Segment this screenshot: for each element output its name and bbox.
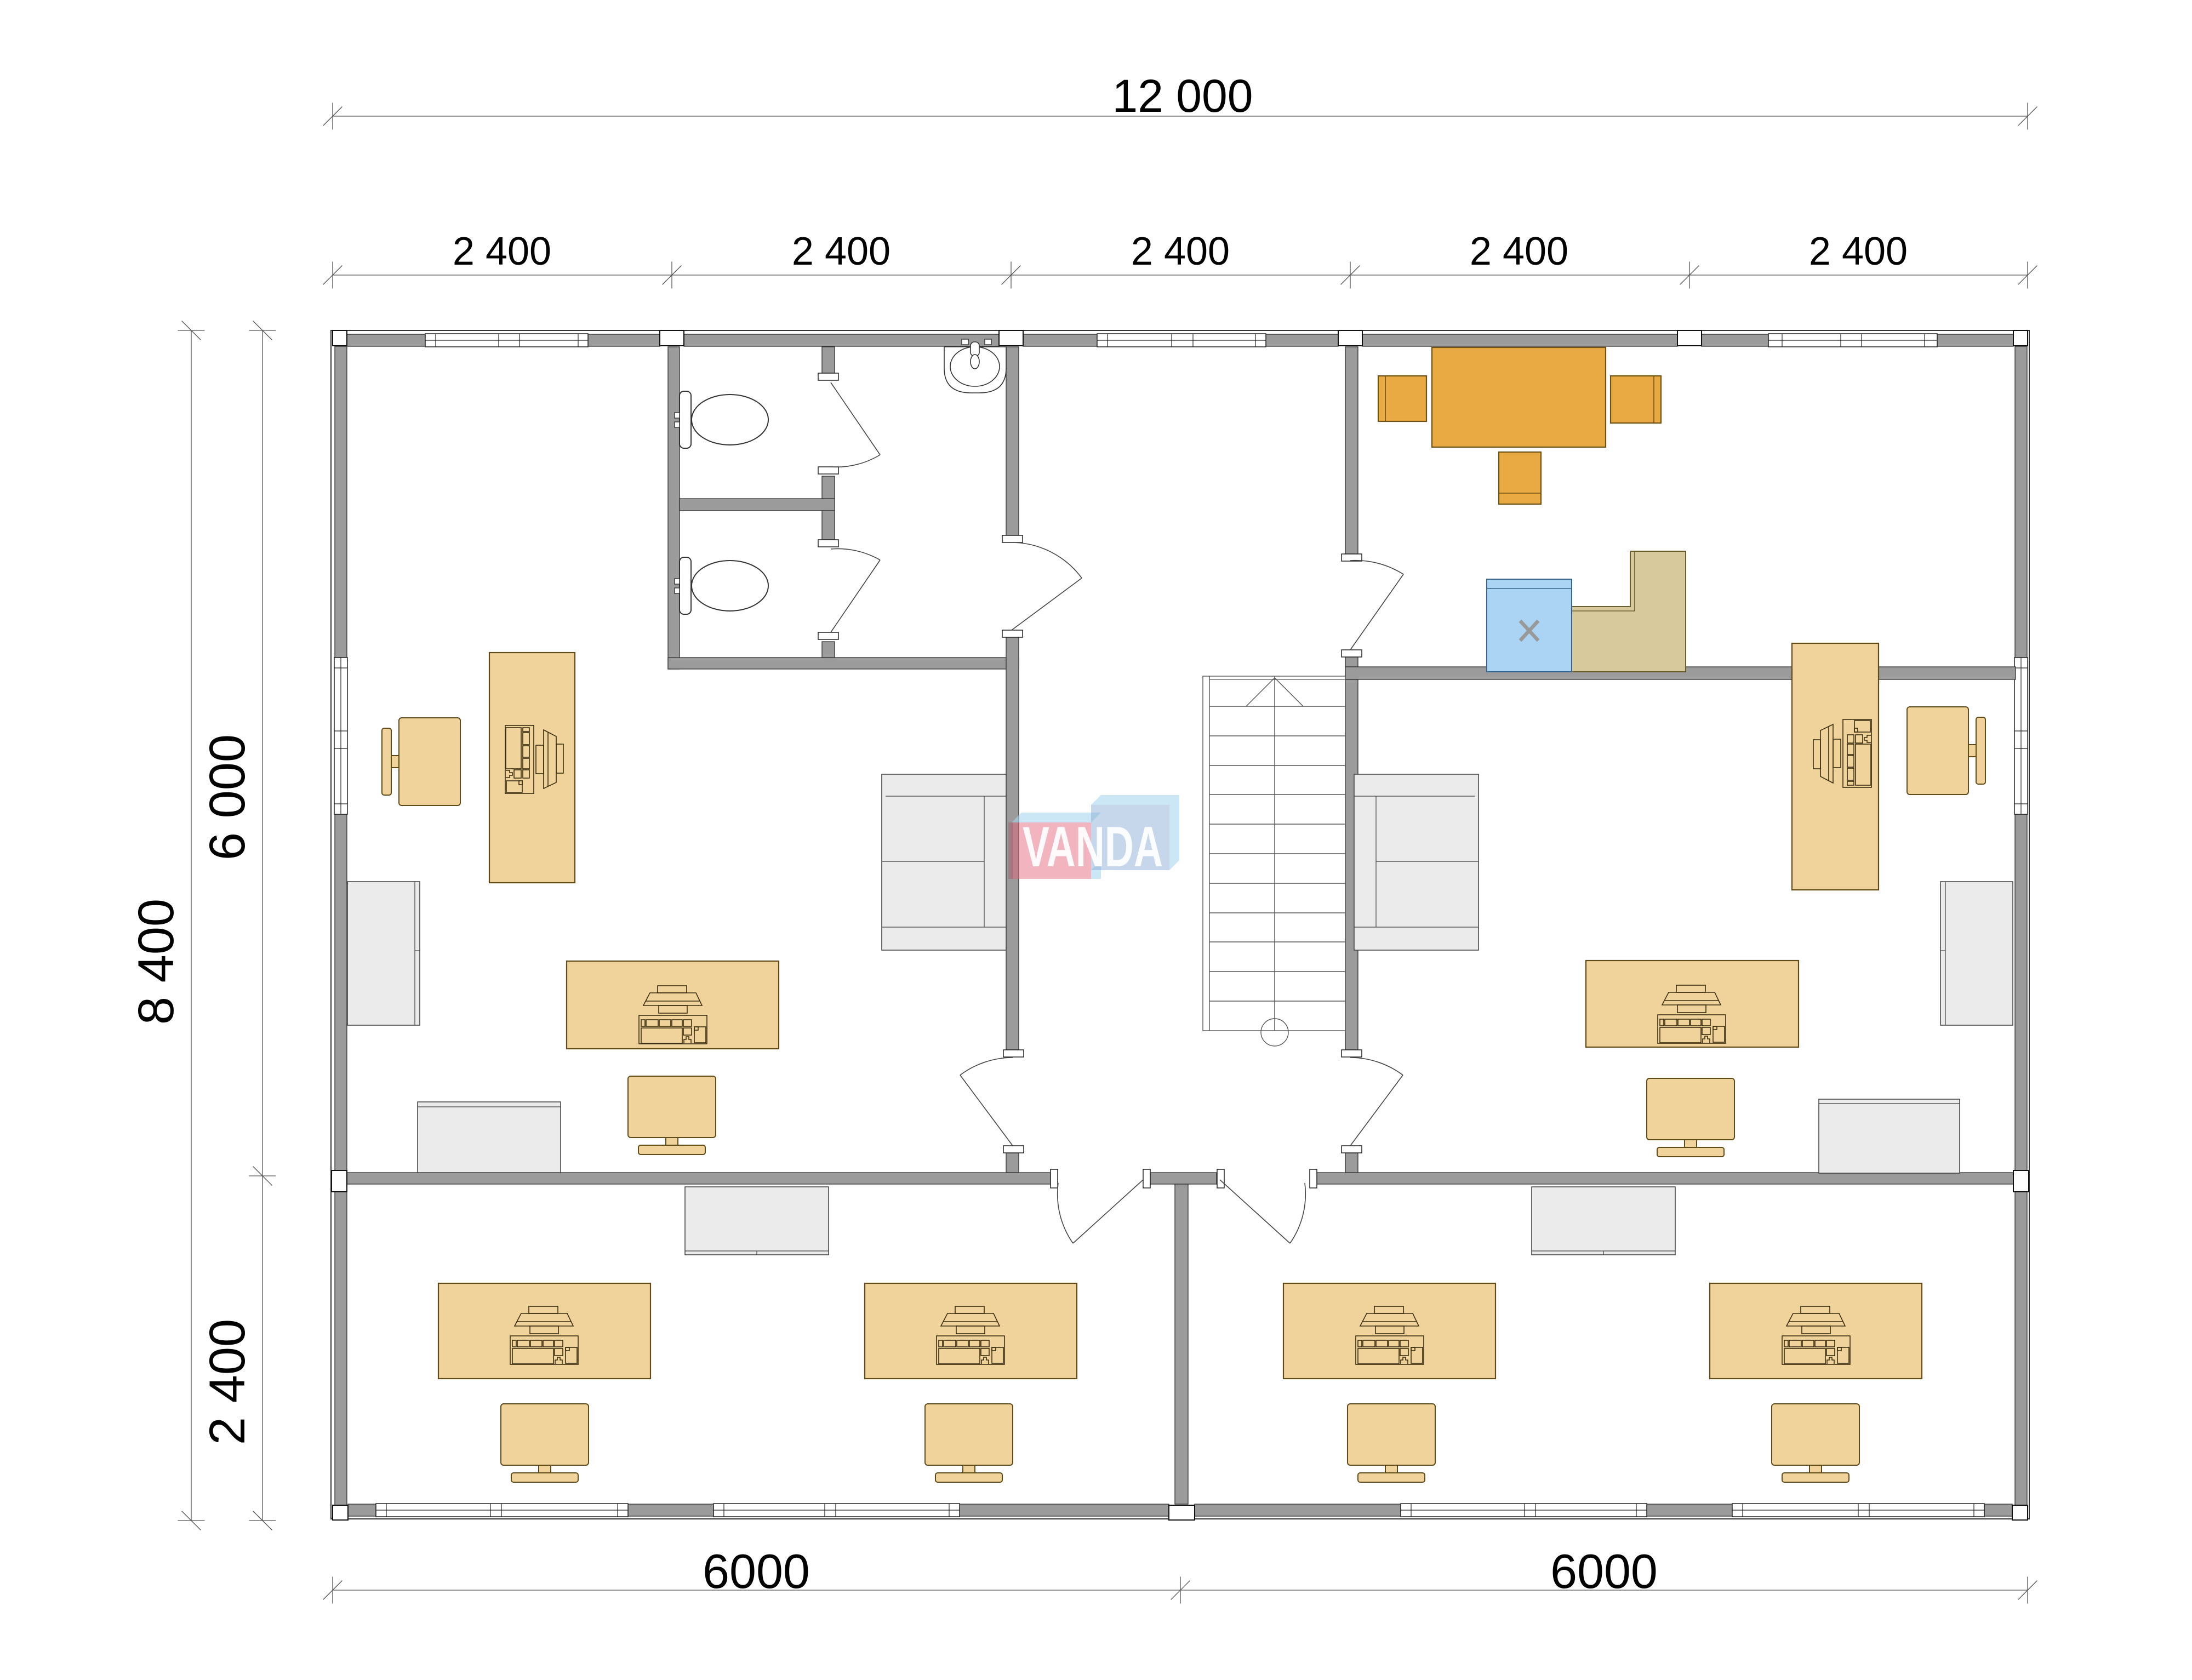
svg-text:VANDA: VANDA bbox=[1023, 815, 1163, 879]
svg-text:2 400: 2 400 bbox=[453, 230, 551, 273]
svg-text:6000: 6000 bbox=[1550, 1544, 1658, 1598]
svg-text:2 400: 2 400 bbox=[1131, 230, 1230, 273]
svg-text:2 400: 2 400 bbox=[199, 1319, 255, 1445]
svg-text:2 400: 2 400 bbox=[1809, 230, 1908, 273]
svg-text:8 400: 8 400 bbox=[128, 899, 184, 1025]
svg-text:2 400: 2 400 bbox=[1470, 230, 1568, 273]
svg-text:6000: 6000 bbox=[703, 1544, 810, 1598]
svg-text:2 400: 2 400 bbox=[792, 230, 891, 273]
svg-text:6 000: 6 000 bbox=[199, 734, 255, 860]
svg-text:12 000: 12 000 bbox=[1112, 70, 1253, 122]
